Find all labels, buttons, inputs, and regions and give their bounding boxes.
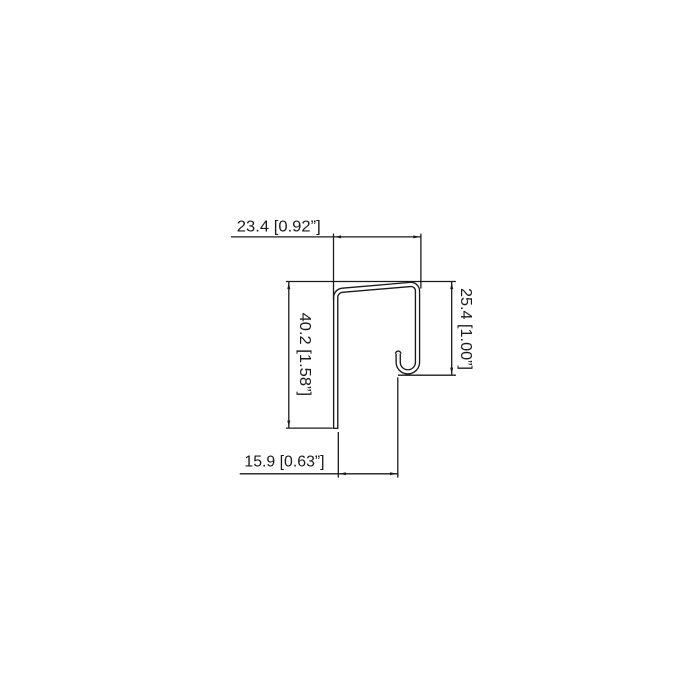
svg-text:23.4 [0.92”]: 23.4 [0.92”] xyxy=(237,218,321,235)
svg-text:25.4 [1.00”]: 25.4 [1.00”] xyxy=(457,288,474,370)
svg-text:15.9 [0.63”]: 15.9 [0.63”] xyxy=(244,453,324,470)
svg-text:40.2 [1.58”]: 40.2 [1.58”] xyxy=(296,313,313,397)
